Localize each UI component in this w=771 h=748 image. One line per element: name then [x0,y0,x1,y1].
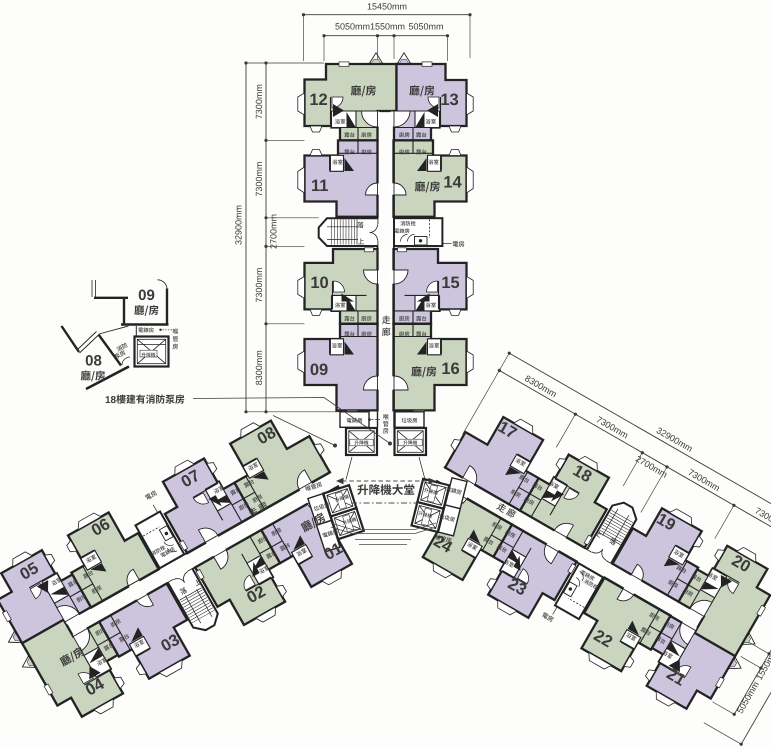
svg-text:12: 12 [309,91,327,109]
svg-text:8300mm: 8300mm [254,350,264,385]
svg-text:7300mm: 7300mm [254,162,264,197]
svg-text:11: 11 [311,177,328,195]
svg-text:08: 08 [85,353,102,370]
svg-text:15: 15 [441,274,459,292]
svg-text:7300mm: 7300mm [254,84,264,119]
svg-text:09: 09 [138,287,155,304]
svg-text:16: 16 [441,360,459,378]
svg-text:14: 14 [443,174,462,192]
svg-text:09: 09 [310,361,328,379]
svg-text:32900mm: 32900mm [234,205,244,245]
svg-text:1550mm: 1550mm [370,21,405,31]
svg-text:2700mm: 2700mm [269,214,279,249]
svg-text:7300mm: 7300mm [254,268,264,303]
svg-text:10: 10 [310,274,328,292]
svg-text:15450mm: 15450mm [367,1,407,11]
svg-text:13: 13 [440,91,458,109]
svg-text:5050mm: 5050mm [335,21,370,31]
svg-text:5050mm: 5050mm [408,21,443,31]
svg-text:18: 18 [105,395,117,406]
